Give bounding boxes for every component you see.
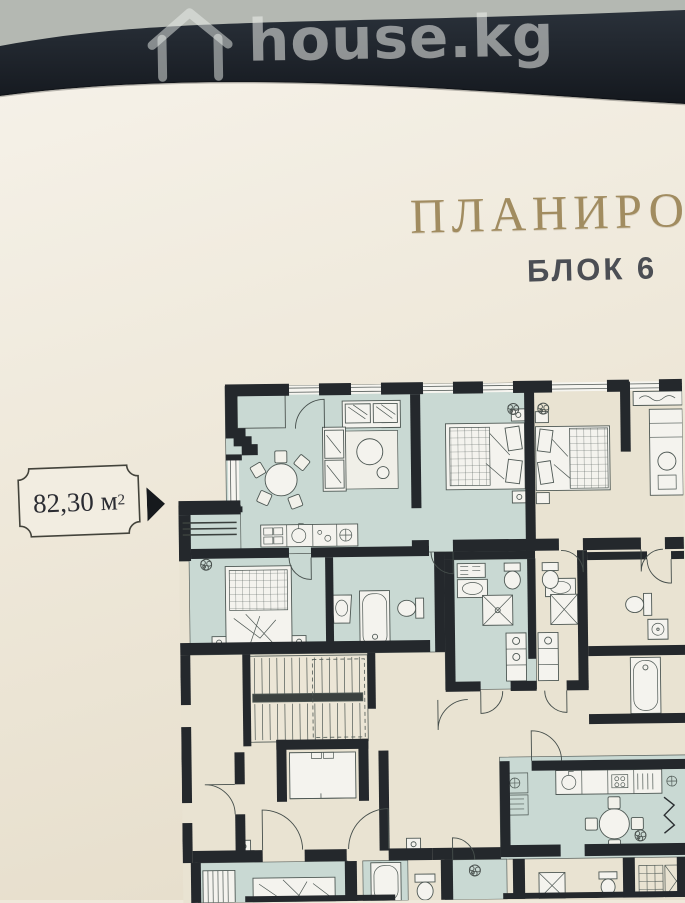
photo-of-floorplan-page: { "watermark": { "brand": "house.kg" }, … (0, 0, 685, 900)
elevator (289, 752, 356, 799)
right-bathtub (630, 657, 661, 713)
area-plaque: 82,30 м2 (13, 460, 146, 543)
arrow-right-icon (146, 487, 167, 524)
page-title: ПЛАНИРОВ (409, 180, 685, 245)
kitchen-counter (261, 523, 358, 547)
area-plaque-text: 82,30 м2 (13, 460, 146, 543)
staircase (247, 655, 368, 742)
page-subtitle: БЛОК 6 (527, 250, 658, 289)
area-unit: м (100, 485, 118, 517)
area-value: 82,30 (32, 486, 94, 519)
floor-plan (177, 365, 685, 903)
